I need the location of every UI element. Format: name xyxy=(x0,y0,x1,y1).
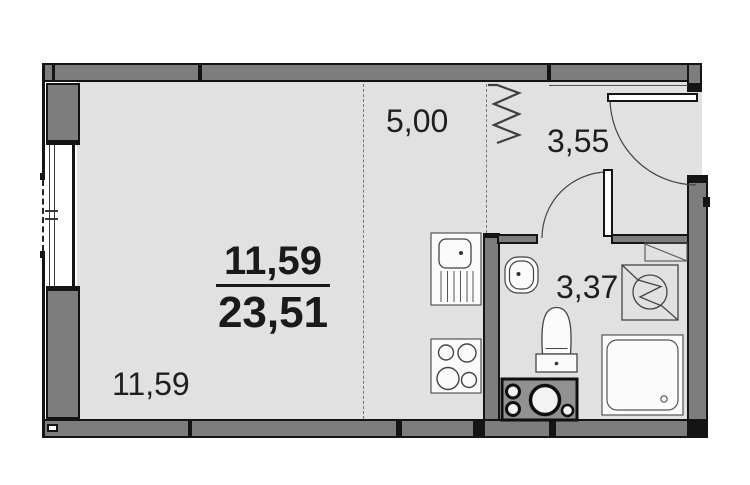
kitchen-sink-icon xyxy=(431,233,481,305)
total-area-value: 23,51 xyxy=(216,287,330,335)
bathroom-door-arc xyxy=(542,172,608,238)
area-summary-fraction: 11,59 23,51 xyxy=(216,241,330,335)
living-area-value: 11,59 xyxy=(216,241,330,287)
bath-area-label: 3,37 xyxy=(556,271,618,303)
fixtures-layer xyxy=(0,0,750,485)
hall-area-label: 3,55 xyxy=(547,125,609,157)
bathroom-door-leaf xyxy=(604,170,612,236)
cooktop-icon xyxy=(431,339,481,393)
floor-plan: 5,00 3,55 3,37 11,59 11,59 23,51 xyxy=(0,0,750,485)
washbasin-icon xyxy=(505,257,538,293)
ventilation-zigzag-icon xyxy=(488,85,519,143)
shower-tray-icon xyxy=(602,335,683,415)
toilet-icon xyxy=(536,308,577,373)
living-area-label: 11,59 xyxy=(112,368,190,400)
corner-shelf-icon xyxy=(645,243,687,261)
entrance-door-arc xyxy=(610,99,696,185)
washing-machine-icon xyxy=(622,265,678,320)
kitchen-area-label: 5,00 xyxy=(386,105,448,137)
entrance-door-leaf xyxy=(608,94,697,101)
plumbing-unit-icon xyxy=(502,379,577,420)
